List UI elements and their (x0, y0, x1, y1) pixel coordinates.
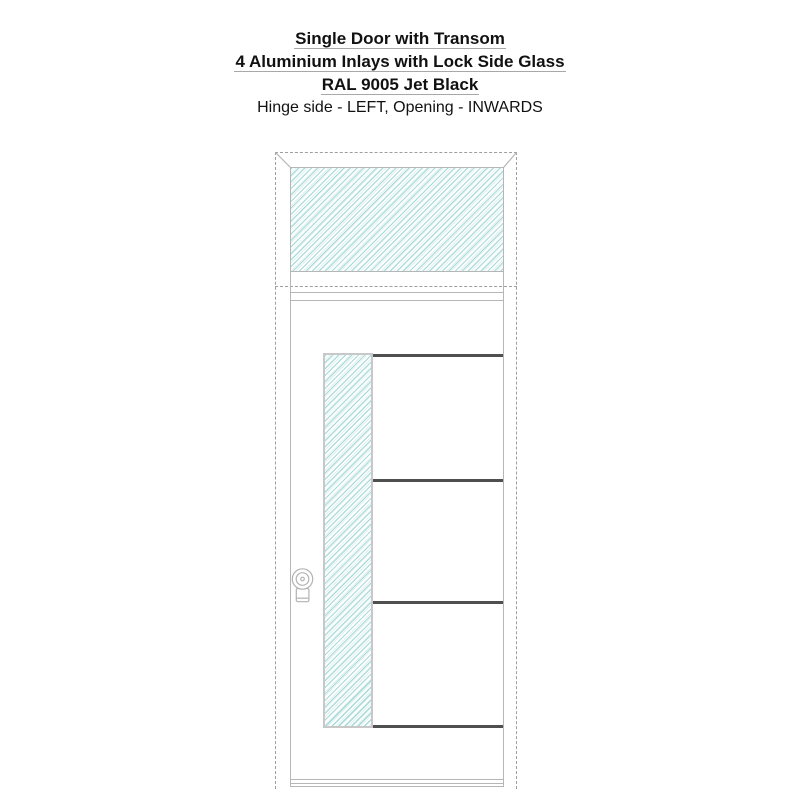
threshold-line-upper (291, 779, 503, 780)
lock-side-glass-panel (323, 353, 373, 728)
frame-head-dashed (275, 152, 517, 153)
frame-jamb-right-dashed (516, 152, 517, 789)
door-elevation-diagram (0, 0, 800, 800)
aluminium-inlay-2 (373, 479, 503, 482)
frame-miter-joint-left (276, 153, 291, 168)
frame-transom-rail-dashed (275, 286, 517, 287)
frame-inner-edge-left (290, 272, 291, 300)
aluminium-inlay-3 (373, 601, 503, 604)
frame-jamb-left-dashed (275, 152, 276, 789)
door-configuration-preview: Single Door with Transom 4 Aluminium Inl… (0, 0, 800, 800)
frame-inner-edge-right (503, 272, 504, 300)
threshold-line-lower (291, 783, 503, 784)
aluminium-inlay-1 (373, 354, 503, 357)
aluminium-inlay-4 (373, 725, 503, 728)
transom-glass-panel (290, 167, 504, 272)
frame-miter-joint-right (504, 153, 517, 168)
transom-rail-line (290, 292, 504, 293)
